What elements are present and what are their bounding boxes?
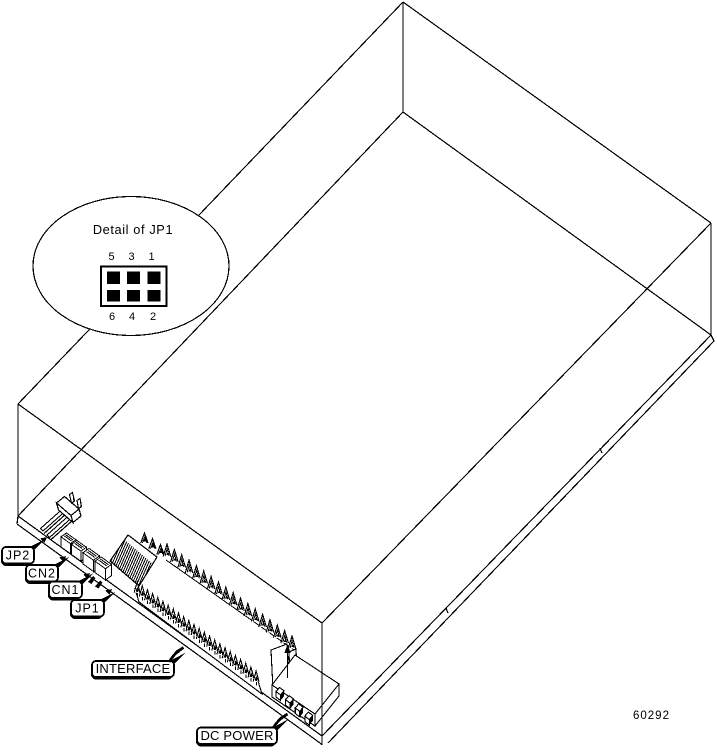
svg-text:1: 1 [148, 251, 154, 263]
svg-text:3: 3 [128, 251, 134, 263]
svg-text:CN1: CN1 [51, 583, 79, 597]
svg-text:JP2: JP2 [6, 549, 31, 563]
svg-text:CN2: CN2 [28, 567, 56, 581]
svg-text:Detail of JP1: Detail of JP1 [93, 222, 173, 237]
svg-text:4: 4 [129, 311, 135, 323]
svg-text:JP1: JP1 [75, 602, 100, 616]
svg-text:2: 2 [150, 311, 156, 323]
svg-text:DC POWER: DC POWER [200, 728, 273, 743]
svg-text:5: 5 [108, 251, 114, 263]
svg-text:60292: 60292 [633, 710, 670, 722]
svg-text:INTERFACE: INTERFACE [96, 661, 171, 676]
svg-text:6: 6 [109, 311, 115, 323]
